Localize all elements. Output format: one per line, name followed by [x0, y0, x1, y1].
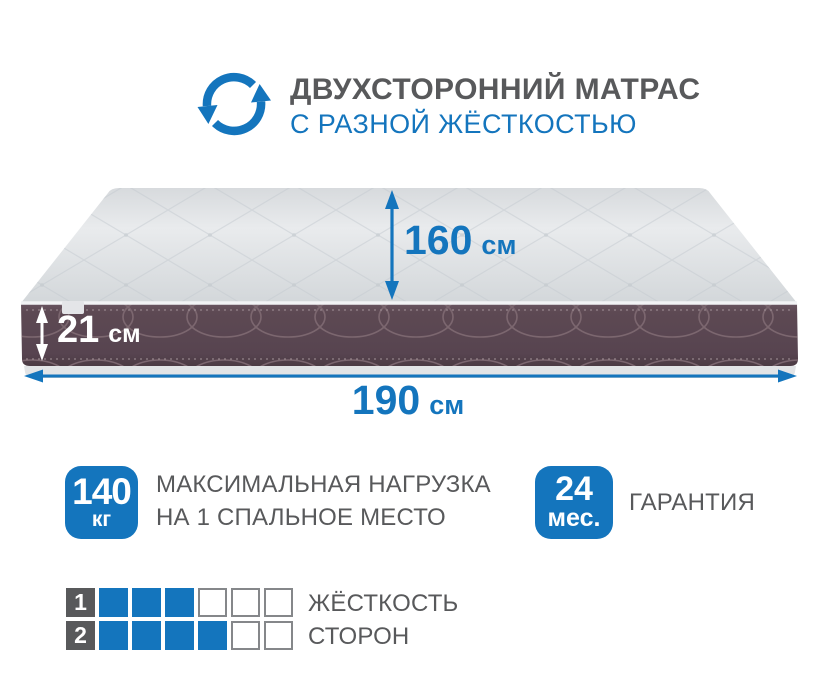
rotate-arrows-icon: [192, 60, 276, 146]
firmness-filled-cell: [198, 621, 227, 650]
firmness-row: 1: [66, 588, 293, 617]
firmness-empty-cell: [231, 621, 260, 650]
firmness-rows: 12: [66, 588, 293, 654]
firmness-filled-cell: [165, 588, 194, 617]
firmness-empty-cell: [231, 588, 260, 617]
width-dimension-label: 160см: [404, 217, 516, 264]
mattress-infographic: ДВУХСТОРОННИЙ МАТРАС С РАЗНОЙ ЖЁСТКОСТЬЮ: [0, 0, 816, 700]
firmness-scale: 12 ЖЁСТКОСТЬ СТОРОН: [66, 588, 459, 654]
page-subtitle: С РАЗНОЙ ЖЁСТКОСТЬЮ: [290, 109, 700, 139]
firmness-side-number: 2: [66, 621, 95, 650]
length-dimension-label: 190см: [0, 377, 816, 424]
firmness-row: 2: [66, 621, 293, 650]
thickness-dimension-label: 21см: [57, 309, 141, 352]
firmness-filled-cell: [99, 621, 128, 650]
max-load-badge: 140 кг: [65, 466, 138, 539]
header: ДВУХСТОРОННИЙ МАТРАС С РАЗНОЙ ЖЁСТКОСТЬЮ: [290, 73, 700, 139]
page-title: ДВУХСТОРОННИЙ МАТРАС: [290, 73, 700, 107]
firmness-empty-cell: [264, 621, 293, 650]
firmness-scale-label: ЖЁСТКОСТЬ СТОРОН: [308, 588, 459, 654]
firmness-side-number: 1: [66, 588, 95, 617]
warranty-badge: 24 мес.: [535, 466, 613, 539]
max-load-label: МАКСИМАЛЬНАЯ НАГРУЗКА НА 1 СПАЛЬНОЕ МЕСТ…: [156, 468, 491, 534]
firmness-empty-cell: [264, 588, 293, 617]
firmness-filled-cell: [132, 588, 161, 617]
firmness-filled-cell: [165, 621, 194, 650]
warranty-label: ГАРАНТИЯ: [629, 486, 755, 519]
firmness-filled-cell: [99, 588, 128, 617]
firmness-empty-cell: [198, 588, 227, 617]
firmness-filled-cell: [132, 621, 161, 650]
